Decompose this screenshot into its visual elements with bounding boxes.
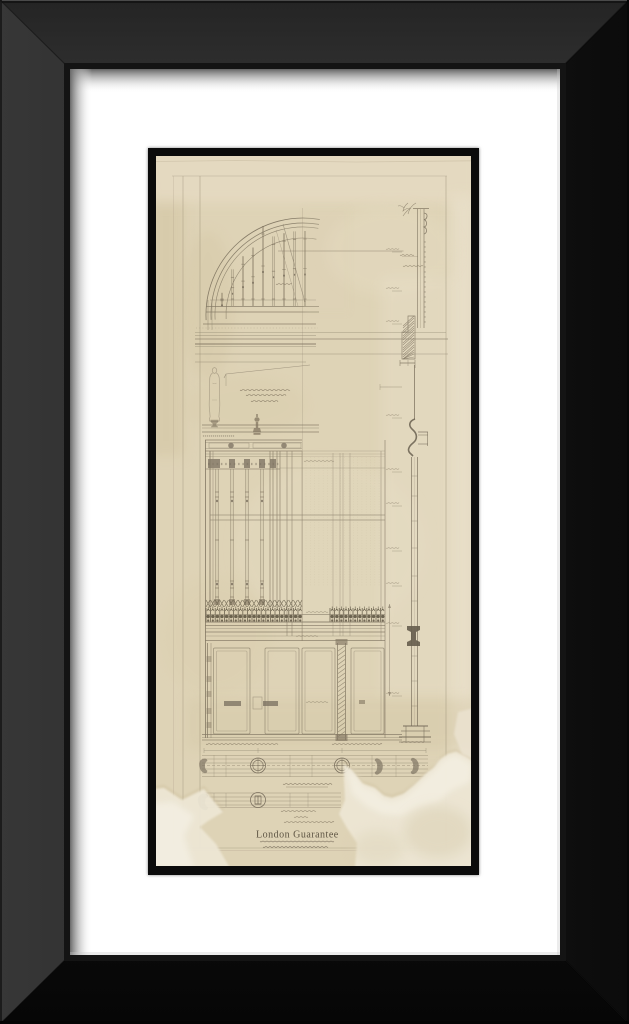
svg-text:London Guarantee: London Guarantee: [256, 830, 339, 841]
